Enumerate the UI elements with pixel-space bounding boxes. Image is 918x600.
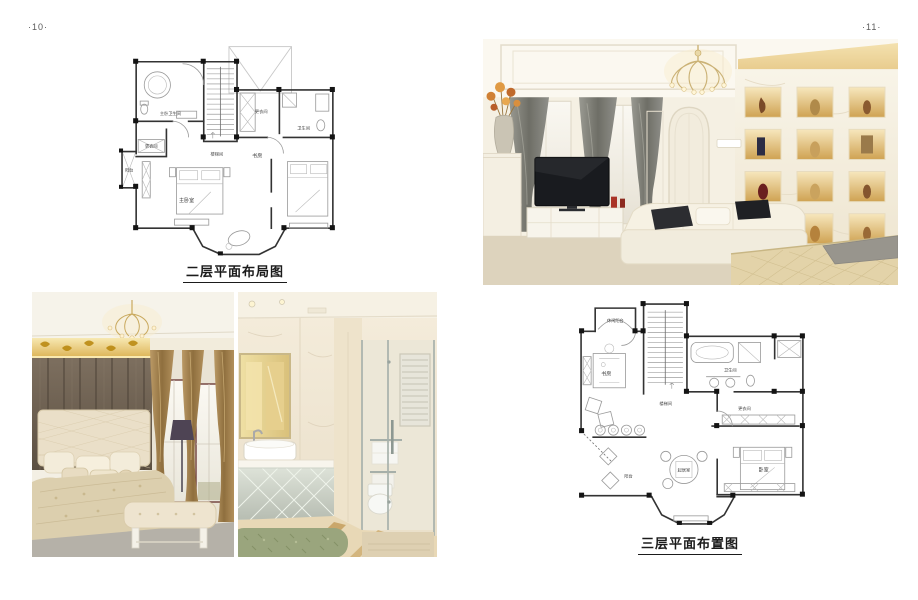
roof-outline	[229, 47, 292, 93]
plan2-stairs	[207, 67, 234, 139]
plan3-walls	[581, 304, 803, 524]
room-label-leisure-balcony: 休闲阳台	[607, 317, 624, 324]
room-label-study-2f: 书房	[252, 153, 262, 160]
bathroom-ceiling	[238, 292, 437, 318]
bathroom-shower	[362, 340, 434, 536]
bathroom-photo	[238, 292, 437, 557]
living-room-photo	[483, 39, 898, 285]
bedroom-photo	[32, 292, 234, 557]
room-label-bathroom-3f: 卫生间	[724, 367, 737, 374]
room-label-bedroom-3f: 卧室	[759, 466, 769, 473]
plan3-furniture	[583, 340, 801, 520]
caption-third-floor: 三层平面布置图	[620, 533, 760, 555]
room-label-bathroom-2f: 卫生间	[297, 124, 310, 131]
book-spread: ·10· ·11·	[0, 0, 918, 600]
page-number-right: ·11·	[862, 22, 881, 32]
plan2-walls	[122, 62, 333, 255]
room-label-sitting-room: 起居室	[678, 466, 691, 473]
plan3-stairs	[648, 310, 683, 389]
caption-second-floor: 二层平面布局图	[170, 261, 300, 283]
wall-switch	[717, 139, 741, 147]
bathroom-rug	[238, 528, 348, 557]
floor-plan-second-floor: 主卧卫生间 更衣间 阳台 主卧室 楼梯间 更衣间 卫生间 书房	[118, 40, 350, 258]
room-label-stair-hall-2f: 楼梯间	[211, 151, 224, 158]
floor-plan-third-floor: 休闲阳台 书房 卫生间 楼梯间 更衣间 阳台 起居室 卧室	[573, 298, 815, 530]
room-label-dressing-3f: 更衣间	[738, 405, 751, 412]
room-label-balcony-3f: 阳台	[624, 473, 632, 480]
room-label-master-bedroom: 主卧室	[179, 197, 194, 204]
room-label-dressing-left: 更衣间	[145, 142, 158, 149]
room-label-dressing-right: 更衣间	[255, 108, 268, 115]
room-label-study-3f: 书房	[601, 371, 611, 378]
room-label-balcony-2f: 阳台	[125, 167, 133, 174]
room-label-stair-hall-3f: 楼梯间	[659, 400, 672, 407]
room-label-master-bathroom: 主卧卫生间	[160, 110, 181, 117]
bathroom-mirror	[240, 354, 290, 438]
page-number-left: ·10·	[28, 22, 48, 32]
